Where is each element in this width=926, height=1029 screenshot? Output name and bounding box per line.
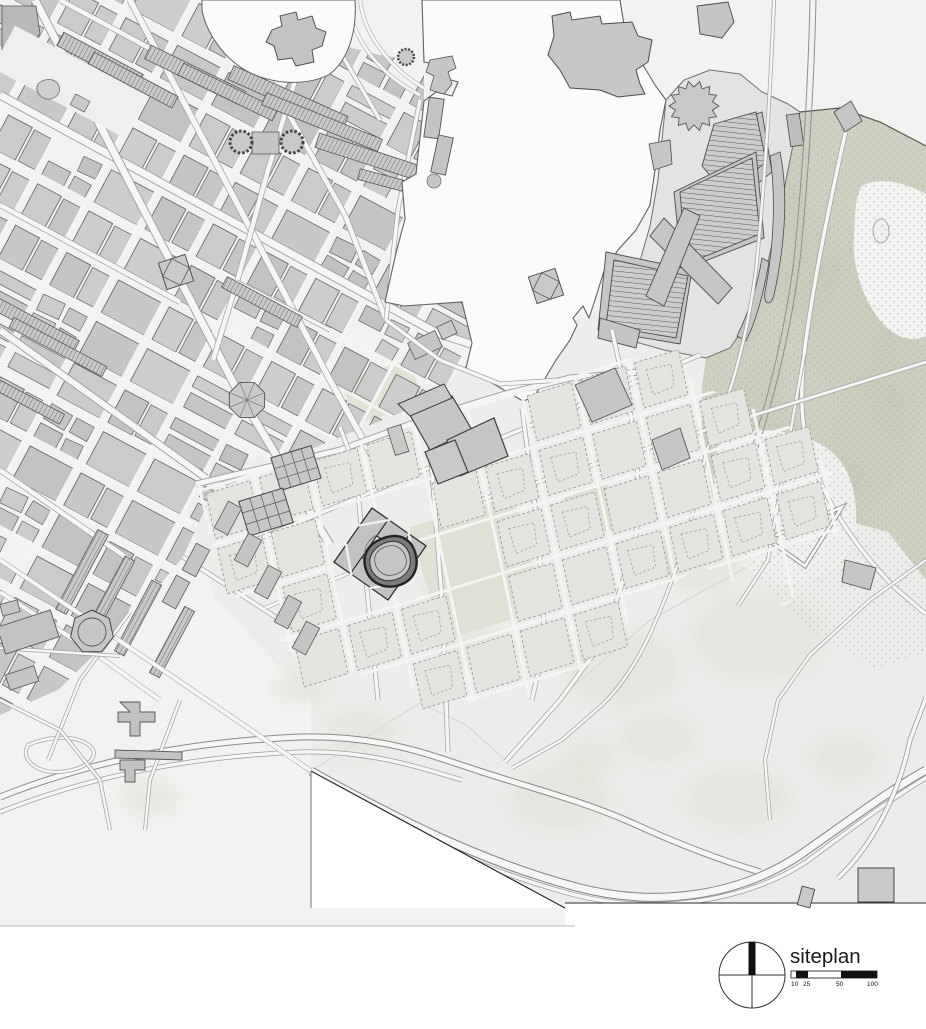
svg-text:10: 10	[791, 981, 799, 988]
svg-text:50: 50	[836, 981, 844, 988]
svg-text:siteplan: siteplan	[790, 945, 861, 968]
svg-text:100: 100	[867, 981, 878, 988]
svg-text:25: 25	[803, 981, 811, 988]
